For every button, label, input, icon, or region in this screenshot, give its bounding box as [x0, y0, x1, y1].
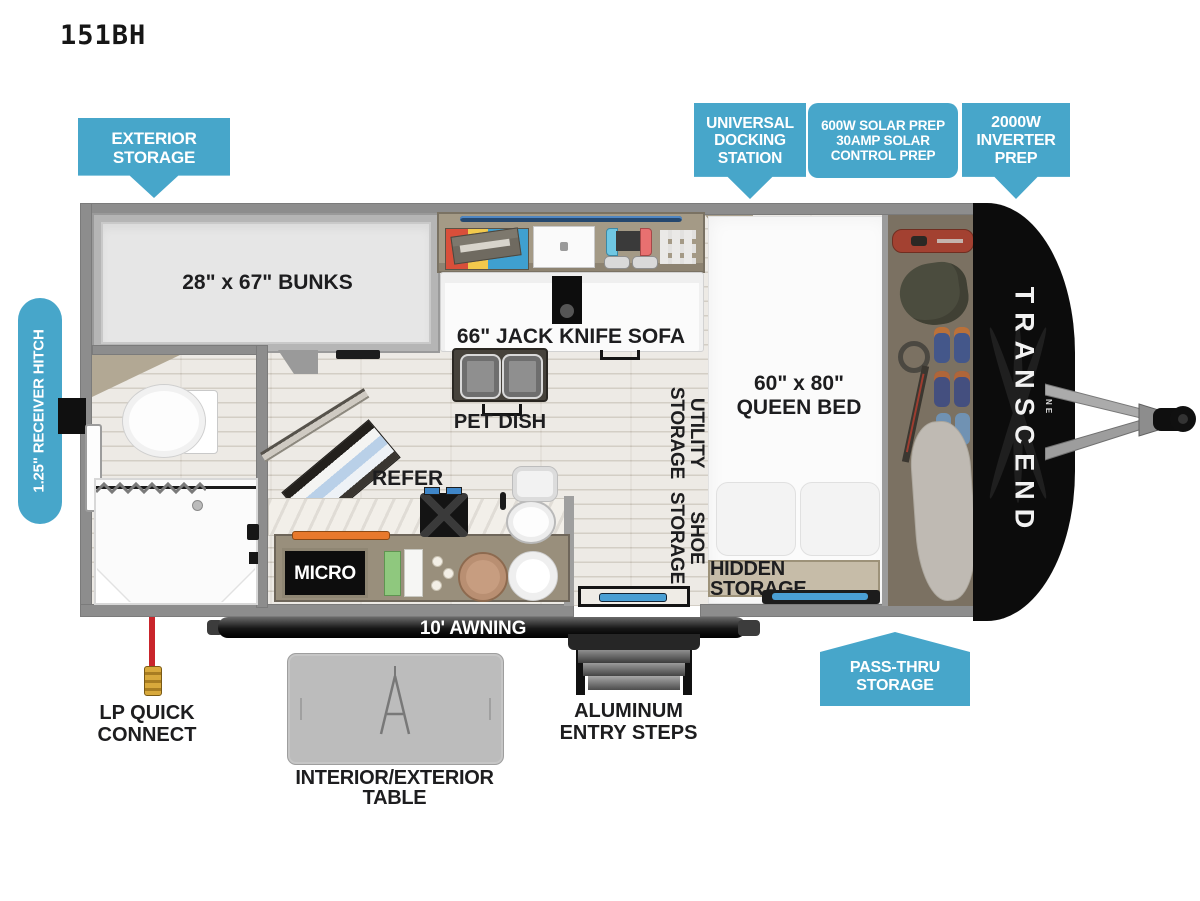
entry-steps-platform	[568, 634, 700, 650]
shower-handle	[249, 552, 258, 564]
mixing-bowl	[458, 552, 508, 602]
micro-label: MICRO	[294, 564, 356, 583]
laptop	[533, 226, 595, 268]
kitchen-sink	[506, 500, 556, 544]
callout-universal-docking-station: UNIVERSAL DOCKING STATION	[694, 103, 806, 199]
microwave: MICRO	[282, 548, 368, 598]
stove-knob	[446, 487, 462, 495]
faucet	[500, 492, 506, 510]
pillow	[716, 482, 796, 556]
callout-receiver-hitch: 1.25" RECEIVER HITCH	[18, 298, 62, 524]
a-frame-arm-upper	[1045, 384, 1145, 419]
lp-line	[149, 617, 155, 669]
receiver-hitch-mount	[58, 398, 86, 434]
awning-label: 10' AWNING	[398, 619, 548, 638]
cutting-board-green	[384, 551, 401, 596]
callout-inverter-prep: 2000W INVERTER PREP	[962, 103, 1070, 199]
queen-bed-label: 60" x 80" QUEEN BED	[724, 372, 874, 420]
pet-bowl	[502, 354, 543, 399]
entry-steps-label: ALUMINUM ENTRY STEPS	[556, 700, 701, 744]
shower-pan	[94, 478, 258, 605]
bed-step-tread	[762, 590, 880, 604]
egg	[432, 556, 443, 567]
sofa-label: 66" JACK KNIFE SOFA	[440, 326, 702, 347]
step-tread	[599, 593, 667, 602]
shoe-storage-label: SHOE STORAGE	[662, 478, 710, 598]
pet-dish-label: PET DISH	[442, 412, 558, 432]
jack-wheel-hub	[1178, 414, 1188, 424]
bathroom-wall-top	[92, 345, 267, 355]
table-edge-mark	[300, 698, 302, 720]
a-frame-arm-lower	[1045, 419, 1145, 460]
plate	[508, 551, 558, 601]
cutting-board-white	[404, 549, 423, 597]
countertop-appliance	[512, 466, 558, 502]
floorplan-page: 151BH EXTERIOR STORAGE UNIVERSAL DOCKING…	[0, 0, 1200, 901]
shower-drain	[192, 500, 203, 511]
bunk-foot	[336, 350, 380, 359]
pillow	[800, 482, 880, 556]
callout-solar-prep: 600W SOLAR PREP 30AMP SOLAR CONTROL PREP	[808, 103, 958, 178]
entry-step	[588, 676, 680, 690]
game-controller	[604, 256, 630, 269]
shower-valve	[247, 524, 259, 540]
trailer-tongue	[1045, 378, 1197, 468]
game-console-screen	[616, 231, 640, 251]
entry-step-well	[578, 586, 690, 607]
sofa-foot	[600, 350, 640, 360]
compass-a-logo	[288, 654, 503, 764]
pass-thru-tint	[888, 215, 978, 606]
bunks-label: 28" x 67" BUNKS	[150, 272, 385, 293]
wall-bottom-left	[80, 604, 574, 617]
game-cartridges	[660, 230, 696, 264]
table-label: INTERIOR/EXTERIOR TABLE	[268, 768, 521, 808]
lp-quick-connect-label: LP QUICK CONNECT	[82, 702, 212, 746]
sofa-console	[552, 276, 582, 324]
entry-step	[583, 663, 685, 676]
entry-step	[578, 650, 690, 663]
game-console-right-joycon	[640, 228, 652, 256]
lp-quick-connect-fitting	[144, 666, 162, 696]
pass-thru-compartment	[888, 215, 978, 606]
table-edge-mark	[489, 698, 491, 720]
toilet	[122, 384, 206, 458]
stove-burner	[420, 493, 468, 537]
step-tread	[772, 593, 868, 600]
page-title: 151BH	[60, 22, 146, 49]
interior-exterior-table	[287, 653, 504, 765]
oven-handle	[292, 531, 390, 540]
callout-pass-thru-storage: PASS-THRU STORAGE	[820, 632, 970, 706]
callout-exterior-storage: EXTERIOR STORAGE	[78, 118, 230, 198]
led-light-strip	[460, 216, 682, 222]
game-controller	[632, 256, 658, 269]
egg	[443, 568, 454, 579]
receiver-hitch-label: 1.25" RECEIVER HITCH	[32, 298, 49, 524]
shower-curtain	[96, 478, 206, 496]
egg	[431, 580, 442, 591]
refer-label: REFER	[372, 468, 452, 489]
awning-end-cap	[738, 620, 760, 636]
pet-bowl	[460, 354, 501, 399]
stove-knob	[424, 487, 440, 495]
brand-name: TRANSCEND	[1011, 232, 1038, 592]
